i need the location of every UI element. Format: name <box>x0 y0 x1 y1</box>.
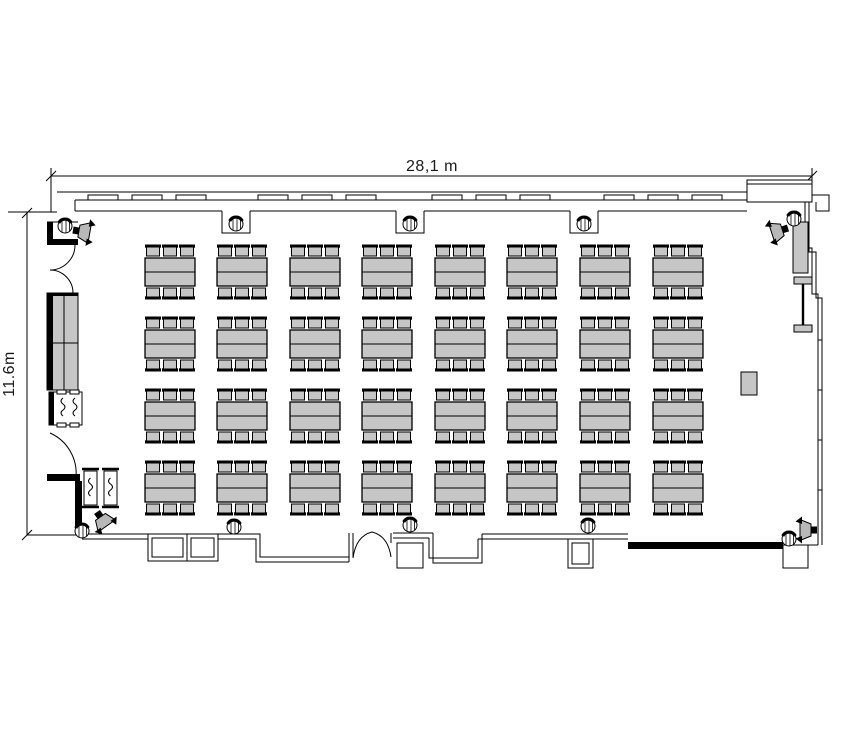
table-group <box>145 389 195 444</box>
chair <box>236 432 249 441</box>
chair <box>326 319 339 328</box>
wall-protrusion <box>747 180 829 211</box>
chair <box>437 432 450 441</box>
radiator-back <box>49 392 54 425</box>
chair <box>509 360 522 369</box>
table-group <box>435 317 485 372</box>
chair <box>616 432 629 441</box>
chair <box>616 247 629 256</box>
chair <box>526 504 539 513</box>
chair <box>582 247 595 256</box>
table-group <box>507 389 557 444</box>
chair <box>655 360 668 369</box>
chair <box>181 432 194 441</box>
table-group <box>290 317 340 372</box>
chair <box>292 432 305 441</box>
structural-column <box>227 520 241 534</box>
chair <box>582 432 595 441</box>
chair <box>181 360 194 369</box>
chair <box>689 360 702 369</box>
chair <box>509 463 522 472</box>
table-group <box>145 317 195 372</box>
table-group <box>580 317 630 372</box>
window-sill <box>346 195 376 200</box>
chair <box>292 360 305 369</box>
structural-column <box>75 524 89 538</box>
chair <box>437 391 450 400</box>
chair <box>543 247 556 256</box>
chair <box>471 391 484 400</box>
chair <box>219 391 232 400</box>
chair <box>181 504 194 513</box>
wall-speaker <box>796 517 818 544</box>
table-group <box>653 389 703 444</box>
chair <box>253 247 266 256</box>
window-sill <box>302 195 332 200</box>
chair <box>398 432 411 441</box>
chair <box>364 247 377 256</box>
chair <box>543 391 556 400</box>
chair <box>236 360 249 369</box>
chair <box>471 319 484 328</box>
structural-column <box>403 217 417 231</box>
chair <box>364 319 377 328</box>
chair <box>164 432 177 441</box>
chair <box>437 504 450 513</box>
chair <box>599 247 612 256</box>
chair <box>292 319 305 328</box>
width-dimension-label: 28,1 m <box>406 158 458 175</box>
chair <box>219 247 232 256</box>
chair <box>672 463 685 472</box>
table-group <box>362 461 412 516</box>
double-door <box>349 532 391 562</box>
chair <box>326 432 339 441</box>
chair <box>582 504 595 513</box>
table-group <box>580 389 630 444</box>
sideboard-cabinet <box>47 293 78 390</box>
chair <box>437 247 450 256</box>
chair <box>689 319 702 328</box>
chair <box>181 247 194 256</box>
chair <box>236 391 249 400</box>
door-swing <box>50 433 76 477</box>
table-group <box>580 245 630 300</box>
radiator-cap <box>70 423 79 427</box>
chair <box>309 463 322 472</box>
chair <box>309 391 322 400</box>
rack-body <box>84 471 97 505</box>
table-group <box>507 317 557 372</box>
wall-niche-d <box>783 545 808 568</box>
chair <box>454 360 467 369</box>
table-group <box>217 317 267 372</box>
chair <box>543 432 556 441</box>
chair <box>509 504 522 513</box>
chair <box>454 432 467 441</box>
chair <box>219 360 232 369</box>
chair <box>599 432 612 441</box>
right-wall-outer <box>809 202 822 545</box>
chair <box>509 288 522 297</box>
chair <box>526 319 539 328</box>
chair <box>616 288 629 297</box>
door-swing-arcs <box>353 532 391 558</box>
chair <box>599 504 612 513</box>
radiator-cap <box>57 423 66 427</box>
coat-racks <box>82 469 119 507</box>
chair <box>381 288 394 297</box>
chair <box>164 463 177 472</box>
chair <box>253 432 266 441</box>
chair <box>326 504 339 513</box>
cabinet-back <box>47 293 53 390</box>
table-group <box>653 317 703 372</box>
chair <box>309 504 322 513</box>
chair <box>454 391 467 400</box>
chair <box>655 288 668 297</box>
chair <box>471 247 484 256</box>
coat-rack <box>102 469 119 507</box>
chair <box>398 288 411 297</box>
wall-niche-b <box>397 543 423 568</box>
wall-niche-a <box>148 534 218 561</box>
radiator-cap <box>57 390 66 394</box>
table-group <box>580 461 630 516</box>
chair <box>147 504 160 513</box>
chair <box>526 360 539 369</box>
chair <box>582 463 595 472</box>
wall-segment <box>82 534 148 539</box>
chair <box>672 391 685 400</box>
window-sill <box>88 195 118 200</box>
lower-corner-wall <box>47 474 82 532</box>
window-sill <box>648 195 678 200</box>
chair <box>219 288 232 297</box>
left-wall <box>47 222 119 532</box>
chair <box>398 504 411 513</box>
window-sill <box>692 195 722 200</box>
chair <box>236 504 249 513</box>
cabinet-top <box>47 293 78 296</box>
chair <box>616 360 629 369</box>
chair <box>364 504 377 513</box>
table-group <box>653 245 703 300</box>
chair <box>164 247 177 256</box>
chair <box>253 391 266 400</box>
chair <box>147 463 160 472</box>
chair <box>655 463 668 472</box>
chair <box>326 247 339 256</box>
chair <box>164 288 177 297</box>
chair <box>181 288 194 297</box>
chair <box>509 247 522 256</box>
chair <box>689 432 702 441</box>
chair <box>147 319 160 328</box>
structural-column <box>581 519 595 533</box>
chair <box>689 288 702 297</box>
chair <box>655 391 668 400</box>
chair <box>236 247 249 256</box>
chair <box>236 463 249 472</box>
chair <box>364 288 377 297</box>
structural-column <box>229 217 243 231</box>
chair <box>599 319 612 328</box>
protrusion-hook <box>812 195 829 211</box>
table-group <box>435 245 485 300</box>
chair <box>147 391 160 400</box>
chair <box>616 463 629 472</box>
chair <box>454 463 467 472</box>
chair <box>181 463 194 472</box>
table-group <box>217 389 267 444</box>
chair <box>398 391 411 400</box>
rack-body <box>104 471 117 505</box>
chair <box>164 319 177 328</box>
chair <box>219 432 232 441</box>
window-sill <box>520 195 550 200</box>
chair <box>672 360 685 369</box>
wall-cabinet <box>793 222 808 273</box>
chair <box>526 247 539 256</box>
protrusion-body <box>747 180 812 202</box>
window-sill <box>132 195 162 200</box>
chair <box>616 504 629 513</box>
chair <box>526 288 539 297</box>
chair <box>292 247 305 256</box>
table-group <box>362 317 412 372</box>
chair <box>689 504 702 513</box>
chair <box>454 319 467 328</box>
solid-wall <box>628 542 783 549</box>
table-group <box>145 245 195 300</box>
chair <box>526 432 539 441</box>
table-group <box>435 461 485 516</box>
flipchart-top-foot <box>794 277 812 284</box>
structural-column <box>787 212 801 226</box>
chair <box>309 247 322 256</box>
table-group <box>145 461 195 516</box>
chair <box>454 504 467 513</box>
chair <box>309 360 322 369</box>
solid-wall <box>47 474 80 481</box>
chair <box>164 391 177 400</box>
chair <box>147 288 160 297</box>
chair <box>398 247 411 256</box>
chair <box>219 504 232 513</box>
window-sill <box>176 195 206 200</box>
table-group <box>362 389 412 444</box>
top-dimension: 28,1 m <box>46 158 817 212</box>
lectern <box>741 372 757 395</box>
chair <box>437 463 450 472</box>
table-group <box>290 461 340 516</box>
chair <box>599 360 612 369</box>
radiator-unit <box>49 390 82 427</box>
chair <box>326 463 339 472</box>
height-dimension-label: 11.6m <box>1 351 18 397</box>
table-group <box>362 245 412 300</box>
chair <box>437 360 450 369</box>
window-sill <box>258 195 288 200</box>
chair <box>655 247 668 256</box>
chair <box>689 247 702 256</box>
chair <box>181 391 194 400</box>
chair <box>253 288 266 297</box>
chair <box>616 391 629 400</box>
chair <box>582 360 595 369</box>
chair <box>164 360 177 369</box>
chair <box>437 288 450 297</box>
chair <box>236 319 249 328</box>
chair <box>509 319 522 328</box>
chair <box>543 288 556 297</box>
table-group <box>653 461 703 516</box>
chair <box>364 391 377 400</box>
chair <box>253 360 266 369</box>
chair <box>471 288 484 297</box>
structural-column <box>58 219 72 233</box>
chair <box>655 432 668 441</box>
chair <box>381 319 394 328</box>
chair <box>147 247 160 256</box>
chair <box>672 247 685 256</box>
chair <box>326 288 339 297</box>
chair <box>219 463 232 472</box>
solid-wall <box>47 239 78 245</box>
chair <box>437 319 450 328</box>
window-sill <box>476 195 506 200</box>
table-group <box>435 389 485 444</box>
chair <box>582 319 595 328</box>
chair <box>543 319 556 328</box>
chair <box>309 288 322 297</box>
chair <box>398 360 411 369</box>
right-wall <box>793 202 822 545</box>
coat-rack <box>82 469 99 507</box>
chair <box>655 319 668 328</box>
table-group <box>507 245 557 300</box>
wall-speaker <box>86 504 120 537</box>
chair <box>471 463 484 472</box>
chair <box>526 463 539 472</box>
floor-plan-page: 28,1 m 11.6m <box>0 0 844 742</box>
window-sill <box>432 195 462 200</box>
chair <box>309 319 322 328</box>
chair <box>454 247 467 256</box>
chair <box>526 391 539 400</box>
structural-column <box>577 217 591 231</box>
chair <box>543 360 556 369</box>
chair <box>147 432 160 441</box>
chair <box>689 463 702 472</box>
chair <box>253 319 266 328</box>
top-wall <box>57 180 829 233</box>
chair <box>381 360 394 369</box>
chair <box>364 360 377 369</box>
chair <box>599 391 612 400</box>
chair <box>582 391 595 400</box>
table-group <box>290 389 340 444</box>
chair <box>381 391 394 400</box>
wall-segment <box>218 534 349 562</box>
chair <box>471 432 484 441</box>
chair <box>509 391 522 400</box>
chair <box>181 319 194 328</box>
chair <box>326 360 339 369</box>
wall-segment <box>478 534 628 539</box>
flipchart-bottom-foot <box>794 325 812 332</box>
table-group <box>217 245 267 300</box>
chair <box>655 504 668 513</box>
chair <box>509 432 522 441</box>
chair <box>381 504 394 513</box>
chair <box>253 504 266 513</box>
chair <box>672 319 685 328</box>
wall-recess <box>429 533 482 563</box>
bottom-wall <box>82 532 818 568</box>
chair <box>364 432 377 441</box>
chair <box>381 463 394 472</box>
table-group <box>290 245 340 300</box>
chair <box>672 432 685 441</box>
table-group <box>217 461 267 516</box>
chair <box>672 288 685 297</box>
door-jamb <box>349 533 353 562</box>
double-door-swing <box>50 245 75 293</box>
tables-layer <box>145 245 703 516</box>
glazing-joints <box>818 340 822 490</box>
chair <box>292 391 305 400</box>
chair <box>599 463 612 472</box>
window-sill <box>604 195 634 200</box>
chair <box>381 432 394 441</box>
chair <box>147 360 160 369</box>
chair <box>381 247 394 256</box>
wall-segment <box>393 533 433 538</box>
chair <box>292 463 305 472</box>
chair <box>364 463 377 472</box>
chair <box>543 504 556 513</box>
chair <box>164 504 177 513</box>
chair <box>582 288 595 297</box>
chair <box>398 319 411 328</box>
chair <box>326 391 339 400</box>
radiator-cap <box>70 390 79 394</box>
chair <box>689 391 702 400</box>
chair <box>236 288 249 297</box>
window-sills <box>88 195 722 200</box>
flipchart <box>794 277 812 332</box>
chair <box>309 432 322 441</box>
chair <box>219 319 232 328</box>
wall-niche-c <box>568 539 593 568</box>
chair <box>543 463 556 472</box>
chair <box>599 288 612 297</box>
structural-column <box>403 518 417 532</box>
chair <box>398 463 411 472</box>
chair <box>471 504 484 513</box>
table-group <box>507 461 557 516</box>
chair <box>454 288 467 297</box>
chair <box>292 288 305 297</box>
floor-plan-svg: 28,1 m 11.6m <box>0 0 844 742</box>
chair <box>292 504 305 513</box>
chair <box>471 360 484 369</box>
chair <box>253 463 266 472</box>
structural-column <box>782 532 796 546</box>
chair <box>672 504 685 513</box>
